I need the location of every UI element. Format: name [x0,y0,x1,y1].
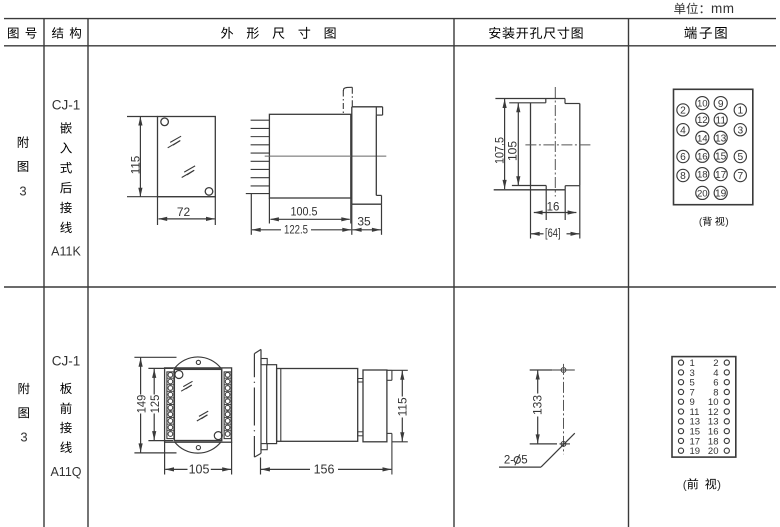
svg-text:11: 11 [715,115,726,126]
svg-text:15: 15 [715,151,727,162]
svg-text:8: 8 [680,171,686,182]
svg-text:3: 3 [737,125,743,136]
svg-text:A11Q: A11Q [50,465,81,479]
svg-text:14: 14 [697,133,708,144]
svg-text:1: 1 [737,106,743,117]
svg-text:105: 105 [506,141,520,161]
svg-text:20: 20 [697,188,708,199]
svg-text:125: 125 [148,394,162,413]
svg-text:[64]: [64] [545,228,561,240]
svg-text:100.5: 100.5 [291,204,318,218]
svg-text:5: 5 [521,455,527,467]
svg-text:105: 105 [189,462,210,476]
svg-text:2-: 2- [504,455,514,467]
svg-text:9: 9 [718,99,724,110]
svg-text:16: 16 [547,201,560,213]
svg-text:2: 2 [680,106,686,117]
svg-text:4: 4 [680,125,686,136]
svg-text:18: 18 [697,170,708,181]
svg-text:6: 6 [680,152,686,163]
svg-text:17: 17 [715,170,727,181]
svg-text:(: ( [699,216,703,228]
svg-text:): ) [717,477,721,491]
svg-text:12: 12 [697,115,708,126]
svg-text:122.5: 122.5 [284,223,308,237]
svg-text:115: 115 [395,397,409,416]
svg-text:3: 3 [19,184,26,199]
svg-text:10: 10 [697,99,708,110]
svg-text:149: 149 [134,394,148,413]
svg-text:156: 156 [314,462,335,476]
svg-text:CJ-1: CJ-1 [52,354,81,369]
svg-text:mm: mm [711,1,735,16]
svg-text:): ) [725,216,729,228]
svg-text:A11K: A11K [51,245,81,259]
svg-text:(: ( [683,477,687,491]
svg-text:19: 19 [690,446,701,457]
svg-text:5: 5 [737,152,743,163]
svg-text:133: 133 [531,395,545,415]
svg-text:CJ-1: CJ-1 [52,97,81,112]
svg-text:7: 7 [737,171,743,182]
svg-text:35: 35 [357,215,371,229]
svg-text:107.5: 107.5 [493,137,507,164]
svg-text:115: 115 [128,155,142,174]
svg-text:13: 13 [715,133,727,144]
svg-text:72: 72 [177,205,191,219]
svg-text:20: 20 [708,446,719,457]
svg-text:16: 16 [697,151,708,162]
svg-text:19: 19 [715,189,727,200]
svg-text:3: 3 [20,429,27,444]
